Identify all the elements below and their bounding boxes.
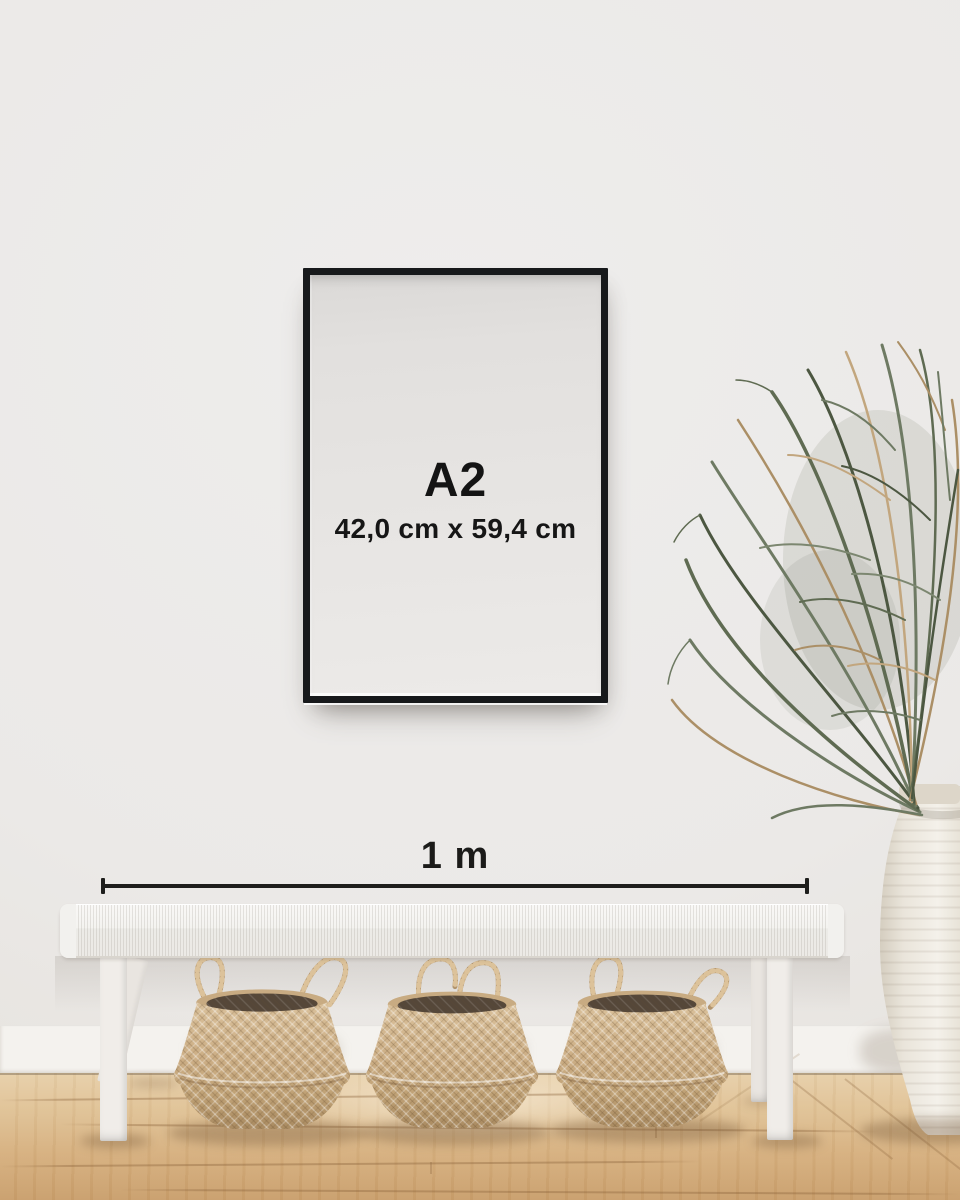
poster-size-guide-scene: A2 42,0 cm x 59,4 cm 1 m <box>0 0 960 1200</box>
poster-paper: A2 42,0 cm x 59,4 cm <box>310 275 601 696</box>
bench-seat <box>60 904 844 958</box>
seagrass-basket-2 <box>362 950 542 1138</box>
basket-body <box>174 1003 350 1129</box>
bench-leg-back-right <box>751 956 768 1102</box>
size-label: A2 <box>310 457 601 505</box>
palm-plant <box>668 342 960 818</box>
basket-body <box>366 1004 538 1128</box>
bench-leg-front-right <box>767 956 793 1140</box>
ceramic-vase <box>880 784 960 1135</box>
dimensions-label: 42,0 cm x 59,4 cm <box>310 515 601 543</box>
basket-body <box>556 1003 728 1127</box>
bench-seat-end-left <box>60 904 76 958</box>
measure-end-tick-left <box>101 878 105 894</box>
bench-leg-front-left <box>100 956 127 1141</box>
seagrass-basket-1 <box>170 948 354 1138</box>
seagrass-basket-3 <box>552 948 732 1138</box>
poster-frame: A2 42,0 cm x 59,4 cm <box>303 268 608 703</box>
bench-seat-end-right <box>828 904 844 958</box>
plank-joint <box>430 1162 432 1174</box>
